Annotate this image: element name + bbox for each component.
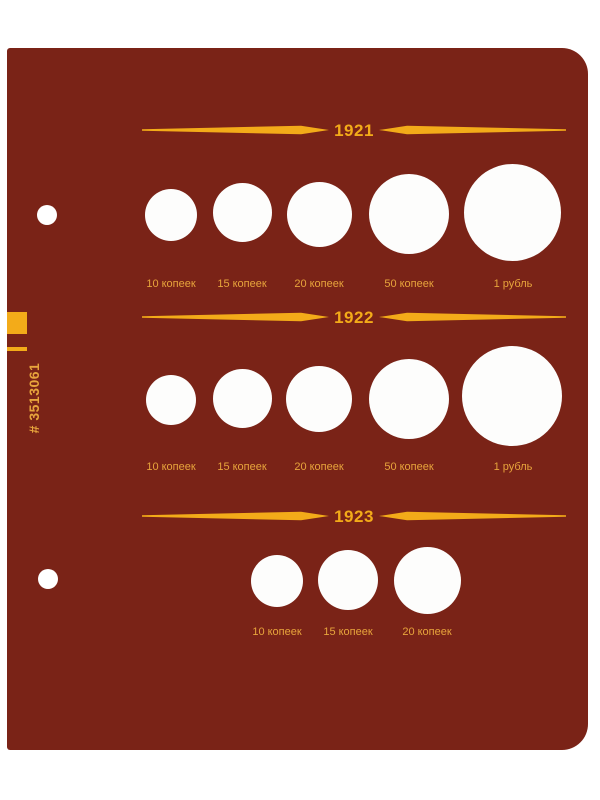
coin-hole-1923-20kop (394, 547, 461, 614)
coin-hole-1921-20kop (287, 182, 352, 247)
section-header-1923: 1923 (142, 505, 566, 527)
coin-hole-1922-15kop (213, 369, 272, 428)
coin-hole-1922-1rub (462, 346, 562, 446)
coin-hole-1922-20kop (286, 366, 352, 432)
divider-ornament-left (142, 312, 329, 322)
coin-label-1921-50kop: 50 копеек (384, 278, 433, 290)
year-label-1921: 1921 (334, 122, 374, 139)
binder-hole-top (37, 205, 57, 225)
divider-ornament-left (142, 125, 329, 135)
year-label-1923: 1923 (334, 508, 374, 525)
coin-label-1921-1rub: 1 рубль (494, 278, 533, 290)
coin-label-1922-20kop: 20 копеек (294, 461, 343, 473)
section-header-1922: 1922 (142, 306, 566, 328)
coin-label-1923-15kop: 15 копеек (323, 626, 372, 638)
coin-label-1923-20kop: 20 копеек (402, 626, 451, 638)
coin-hole-1923-15kop (318, 550, 378, 610)
divider-ornament-right (379, 511, 566, 521)
spine-tab-bar (7, 347, 27, 351)
coin-label-1922-50kop: 50 копеек (384, 461, 433, 473)
binder-hole-bottom (38, 569, 58, 589)
coin-label-1922-1rub: 1 рубль (494, 461, 533, 473)
section-header-1921: 1921 (142, 119, 566, 141)
coin-label-1921-20kop: 20 копеек (294, 278, 343, 290)
coin-hole-1921-15kop (213, 183, 272, 242)
year-label-1922: 1922 (334, 309, 374, 326)
spine-tab (7, 312, 27, 334)
coin-hole-1922-10kop (146, 375, 196, 425)
coin-hole-1921-10kop (145, 189, 197, 241)
coin-hole-1923-10kop (251, 555, 303, 607)
coin-hole-1921-50kop (369, 174, 449, 254)
divider-ornament-right (379, 312, 566, 322)
coin-hole-1922-50kop (369, 359, 449, 439)
catalog-number: # 3513061 (26, 363, 42, 434)
coin-label-1921-10kop: 10 копеек (146, 278, 195, 290)
divider-ornament-right (379, 125, 566, 135)
coin-label-1922-10kop: 10 копеек (146, 461, 195, 473)
coin-label-1923-10kop: 10 копеек (252, 626, 301, 638)
coin-label-1922-15kop: 15 копеек (217, 461, 266, 473)
coin-hole-1921-1rub (464, 164, 561, 261)
coin-label-1921-15kop: 15 копеек (217, 278, 266, 290)
divider-ornament-left (142, 511, 329, 521)
album-page: # 3513061 1921 10 копеек 15 копеек 20 ко… (7, 48, 588, 750)
